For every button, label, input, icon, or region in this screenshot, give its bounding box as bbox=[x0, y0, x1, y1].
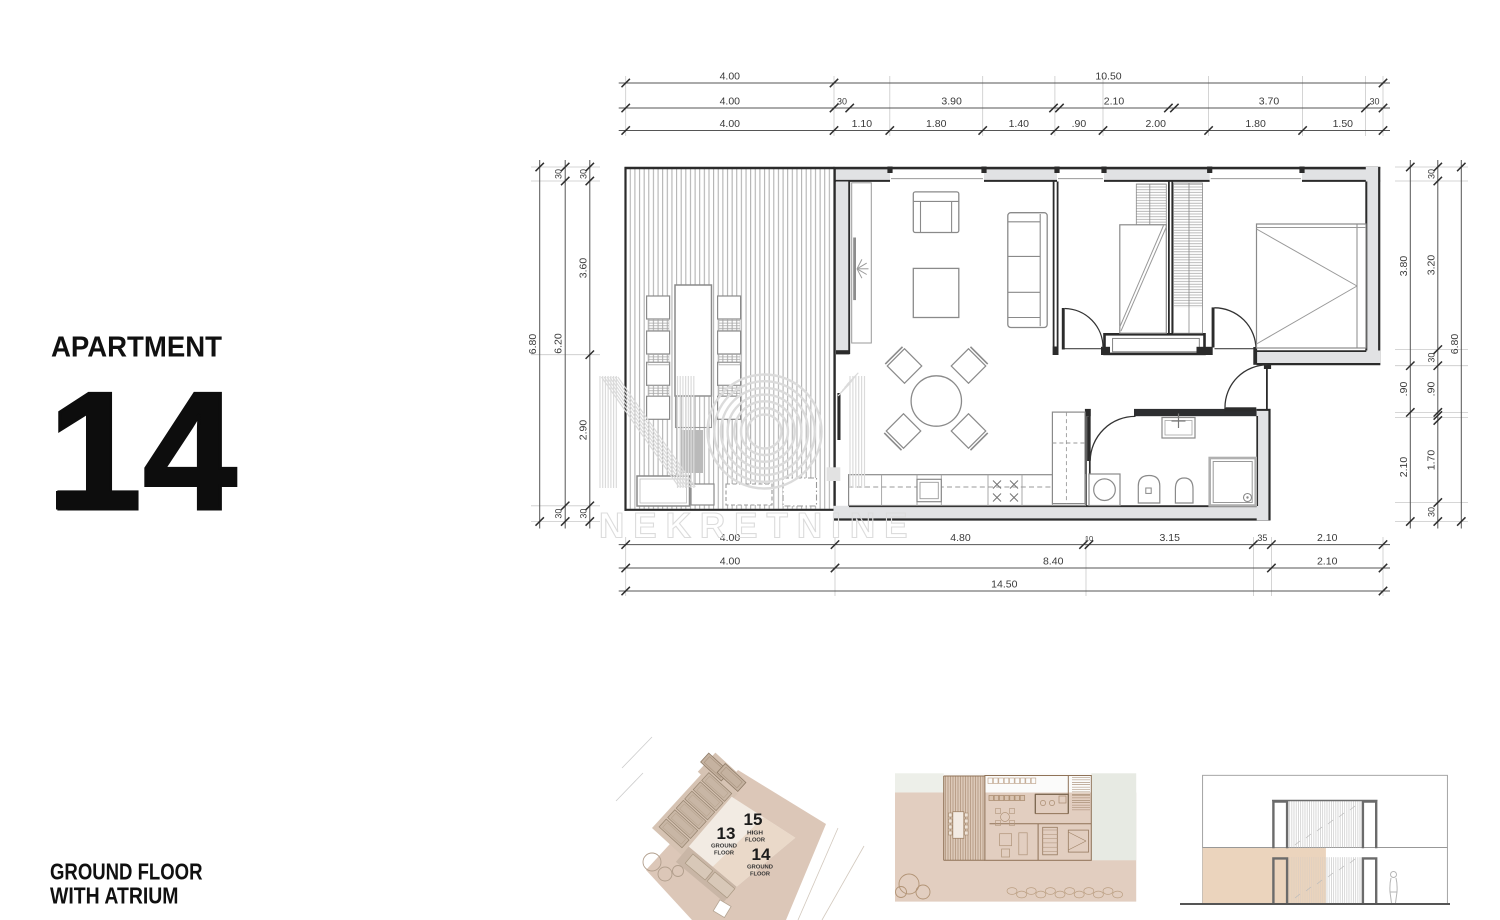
svg-text:3.15: 3.15 bbox=[1159, 532, 1180, 544]
svg-text:4.80: 4.80 bbox=[950, 532, 971, 544]
svg-text:30: 30 bbox=[578, 509, 588, 519]
svg-text:3.60: 3.60 bbox=[577, 258, 589, 279]
svg-text:2.10: 2.10 bbox=[1104, 96, 1125, 108]
svg-text:30: 30 bbox=[1426, 507, 1436, 517]
svg-text:NEKRETNINE: NEKRETNINE bbox=[599, 507, 917, 546]
svg-text:6.80: 6.80 bbox=[527, 334, 539, 355]
svg-text:30: 30 bbox=[1426, 169, 1436, 179]
svg-text:FLOOR: FLOOR bbox=[750, 872, 770, 878]
svg-text:3.70: 3.70 bbox=[1259, 96, 1280, 108]
svg-text:1: 1 bbox=[48, 357, 141, 545]
svg-text:.90: .90 bbox=[1425, 382, 1437, 397]
svg-text:FLOOR: FLOOR bbox=[745, 838, 765, 844]
svg-text:GROUND: GROUND bbox=[711, 844, 737, 850]
svg-text:1.70: 1.70 bbox=[1425, 450, 1437, 471]
svg-text:3.80: 3.80 bbox=[1398, 256, 1410, 277]
svg-text:8.40: 8.40 bbox=[1043, 556, 1064, 568]
svg-text:10.50: 10.50 bbox=[1095, 71, 1121, 83]
svg-text:4.00: 4.00 bbox=[720, 556, 741, 568]
svg-text:30: 30 bbox=[578, 169, 588, 179]
svg-text:6.80: 6.80 bbox=[1449, 334, 1461, 355]
svg-text:4: 4 bbox=[143, 357, 236, 545]
svg-text:3.20: 3.20 bbox=[1425, 255, 1437, 276]
svg-text:10: 10 bbox=[1085, 534, 1093, 543]
svg-text:30: 30 bbox=[1426, 353, 1436, 363]
svg-text:14.50: 14.50 bbox=[991, 579, 1017, 591]
svg-text:HIGH: HIGH bbox=[747, 831, 763, 837]
svg-text:35: 35 bbox=[1257, 533, 1267, 543]
svg-text:14: 14 bbox=[752, 845, 771, 864]
svg-text:2.10: 2.10 bbox=[1317, 556, 1338, 568]
svg-text:4.00: 4.00 bbox=[720, 96, 741, 108]
svg-text:30: 30 bbox=[837, 97, 847, 107]
svg-text:3.90: 3.90 bbox=[941, 96, 962, 108]
svg-text:1.50: 1.50 bbox=[1333, 118, 1354, 130]
svg-text:GROUND FLOOR: GROUND FLOOR bbox=[50, 859, 203, 885]
svg-text:2.10: 2.10 bbox=[1398, 457, 1410, 478]
svg-text:.90: .90 bbox=[1072, 118, 1087, 130]
svg-text:30: 30 bbox=[1369, 97, 1379, 107]
svg-text:FLOOR: FLOOR bbox=[714, 851, 734, 857]
svg-text:1.80: 1.80 bbox=[926, 118, 947, 130]
svg-text:13: 13 bbox=[717, 824, 736, 843]
svg-text:2.90: 2.90 bbox=[577, 420, 589, 441]
svg-text:6.20: 6.20 bbox=[553, 333, 565, 354]
svg-text:1.40: 1.40 bbox=[1009, 118, 1030, 130]
svg-text:2.00: 2.00 bbox=[1145, 118, 1166, 130]
svg-text:4.00: 4.00 bbox=[720, 71, 741, 83]
svg-text:30: 30 bbox=[554, 509, 564, 519]
svg-text:2.10: 2.10 bbox=[1317, 532, 1338, 544]
svg-text:30: 30 bbox=[554, 169, 564, 179]
svg-text:1.10: 1.10 bbox=[852, 118, 873, 130]
svg-text:4.00: 4.00 bbox=[720, 118, 741, 130]
svg-text:.90: .90 bbox=[1398, 382, 1410, 397]
svg-text:1.80: 1.80 bbox=[1245, 118, 1266, 130]
svg-text:15: 15 bbox=[744, 810, 763, 829]
svg-text:GROUND: GROUND bbox=[747, 865, 773, 871]
svg-text:WITH ATRIUM: WITH ATRIUM bbox=[50, 883, 179, 909]
